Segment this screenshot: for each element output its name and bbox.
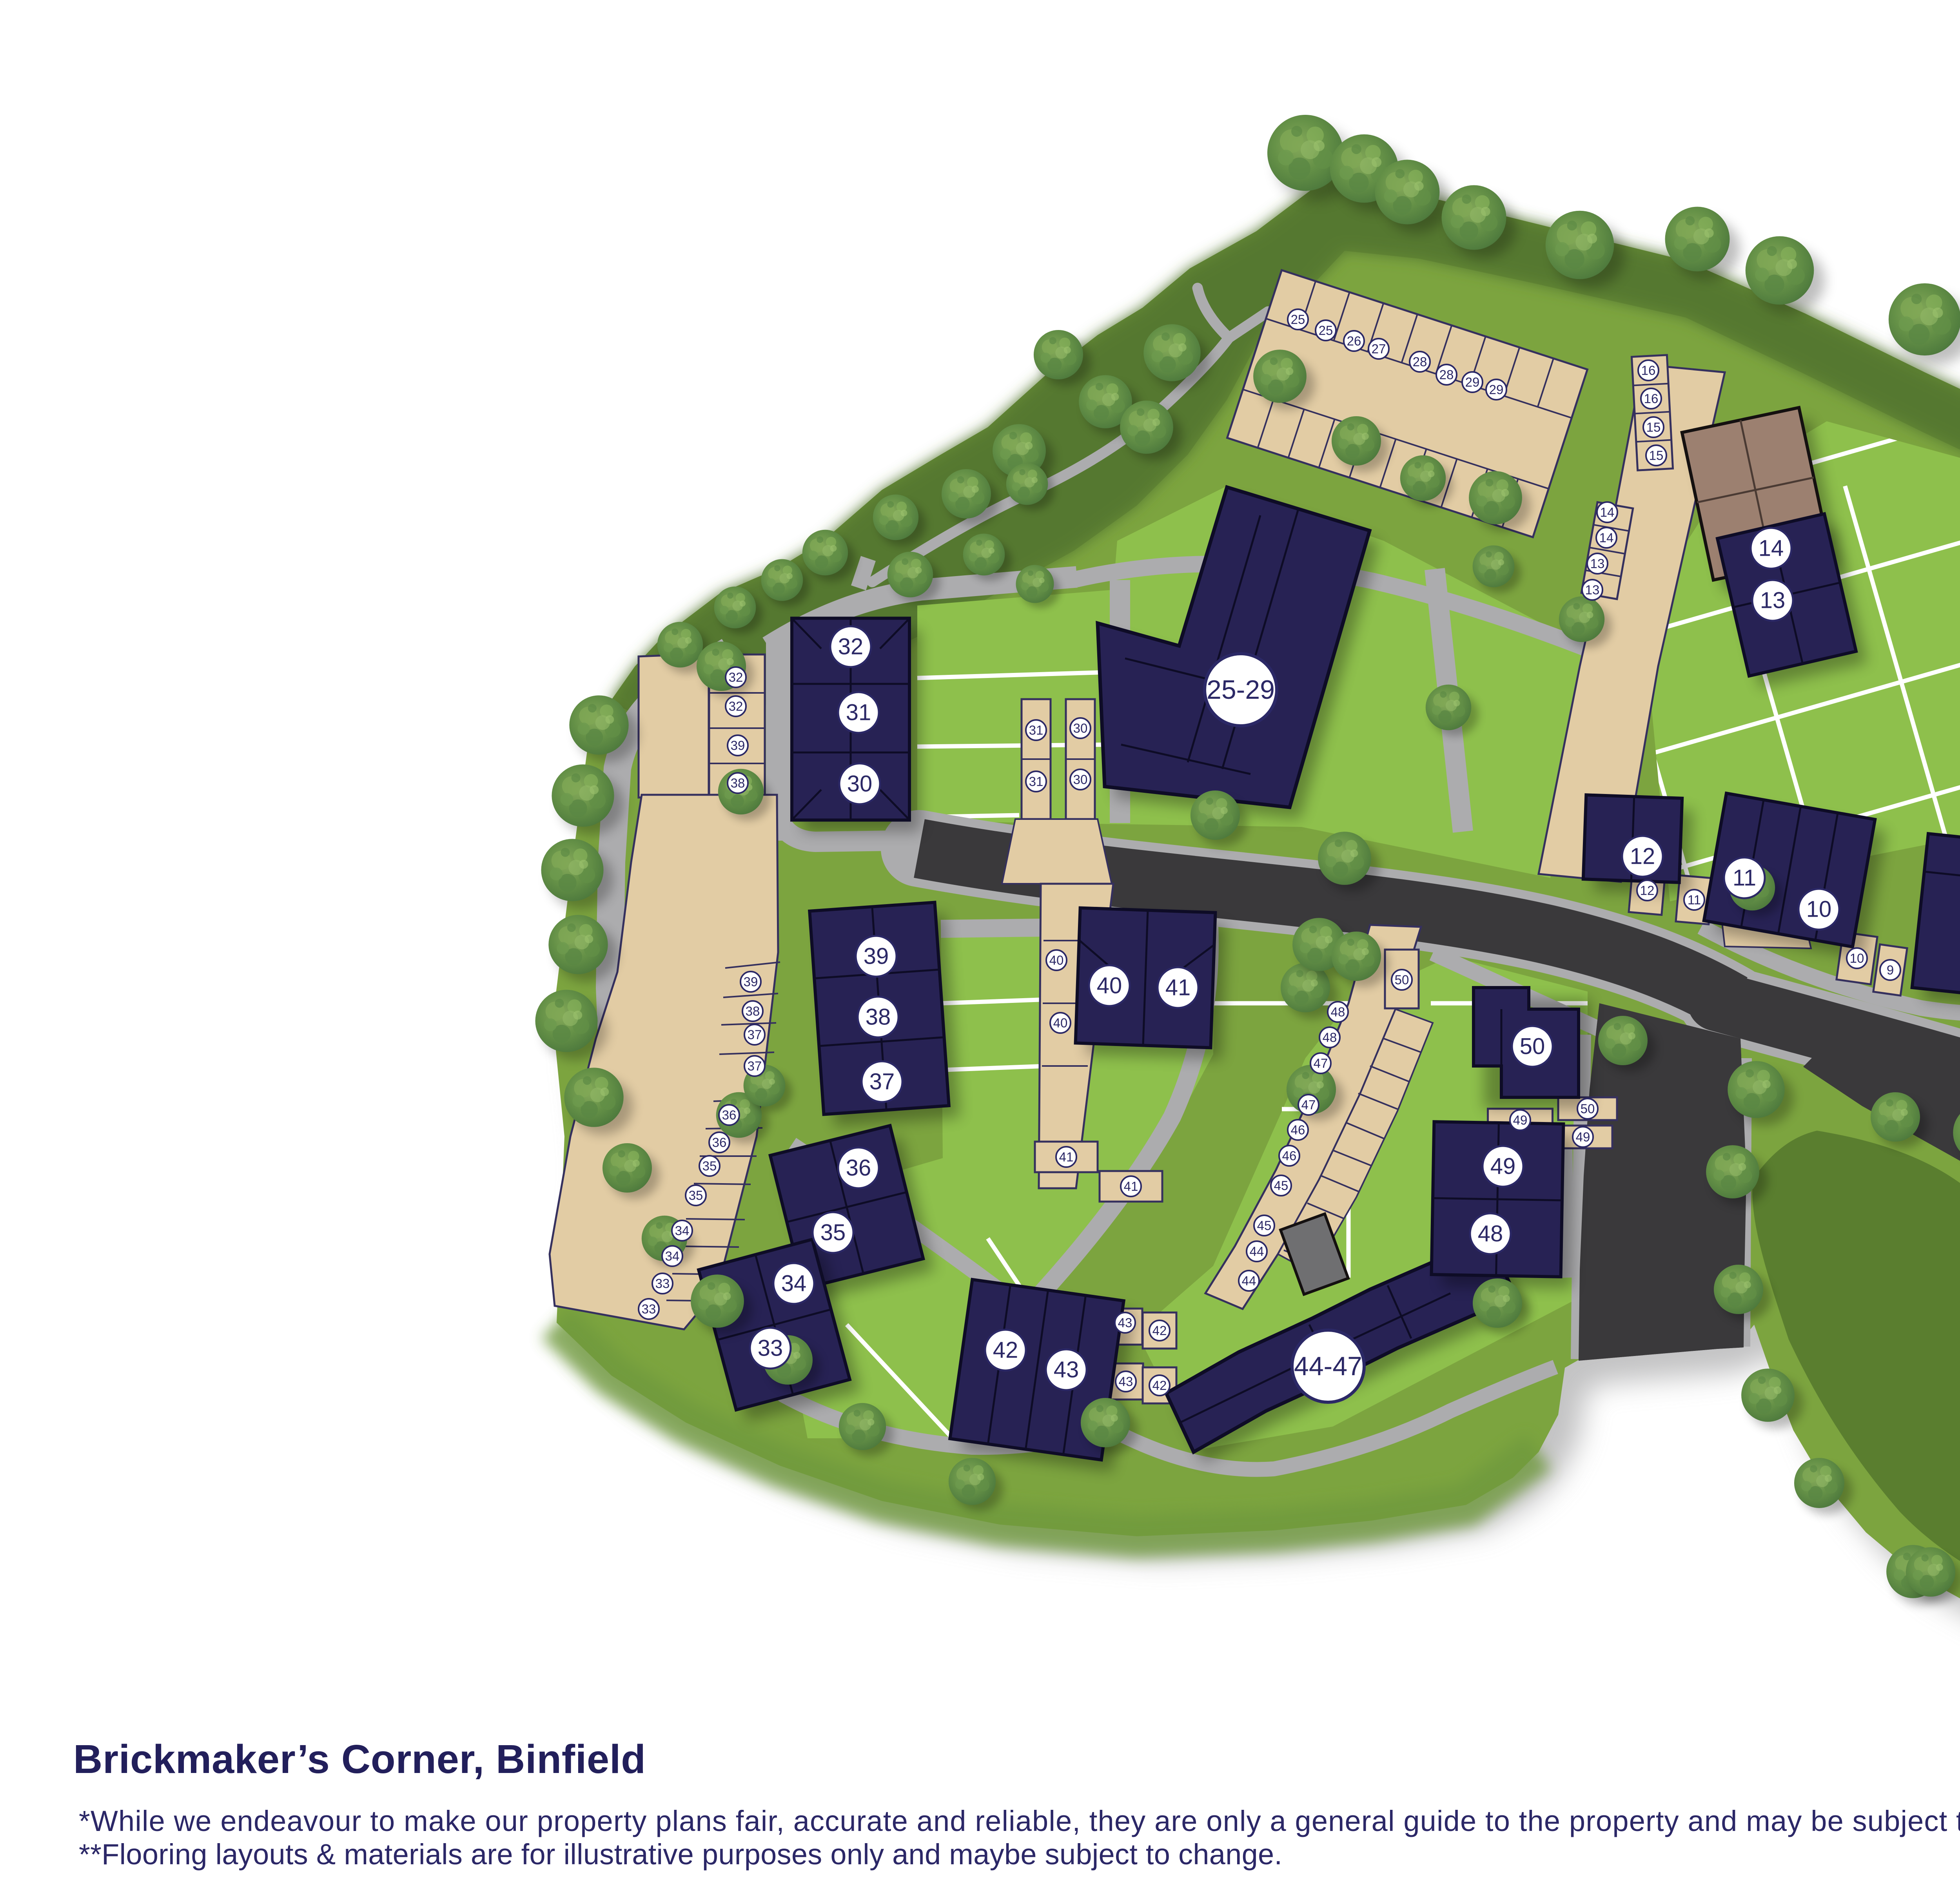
svg-text:30: 30 [847, 771, 873, 797]
svg-text:36: 36 [722, 1108, 737, 1122]
svg-text:33: 33 [642, 1302, 656, 1316]
svg-text:16: 16 [1641, 363, 1656, 378]
svg-text:35: 35 [702, 1159, 717, 1173]
svg-text:14: 14 [1759, 536, 1784, 561]
svg-text:10: 10 [1850, 951, 1864, 966]
svg-text:11: 11 [1688, 893, 1701, 907]
svg-text:44-47: 44-47 [1294, 1351, 1362, 1381]
svg-text:50: 50 [1395, 973, 1409, 987]
svg-text:35: 35 [689, 1188, 703, 1203]
svg-text:35: 35 [820, 1220, 846, 1245]
svg-text:30: 30 [1073, 772, 1088, 787]
svg-text:49: 49 [1513, 1113, 1528, 1128]
svg-text:37: 37 [869, 1069, 895, 1095]
svg-text:37: 37 [748, 1028, 762, 1042]
svg-text:32: 32 [838, 634, 864, 660]
svg-text:33: 33 [655, 1276, 670, 1291]
svg-text:36: 36 [846, 1155, 871, 1181]
svg-text:13: 13 [1585, 583, 1600, 597]
svg-text:28: 28 [1413, 355, 1427, 369]
svg-text:25: 25 [1319, 323, 1333, 338]
svg-text:33: 33 [758, 1336, 783, 1361]
svg-text:29: 29 [1489, 383, 1504, 397]
svg-text:42: 42 [1152, 1378, 1167, 1393]
svg-text:34: 34 [665, 1249, 680, 1264]
svg-text:36: 36 [712, 1135, 727, 1150]
svg-text:42: 42 [1152, 1323, 1167, 1338]
svg-text:29: 29 [1465, 375, 1480, 390]
svg-text:15: 15 [1646, 420, 1661, 435]
svg-text:49: 49 [1490, 1154, 1516, 1179]
svg-text:37: 37 [748, 1059, 762, 1073]
svg-text:16: 16 [1644, 392, 1659, 406]
svg-text:31: 31 [1029, 774, 1044, 789]
svg-text:**Flooring layouts & materials: **Flooring layouts & materials are for i… [79, 1838, 1282, 1871]
svg-text:46: 46 [1291, 1123, 1305, 1137]
svg-text:25: 25 [1291, 312, 1305, 327]
svg-text:14: 14 [1600, 505, 1615, 520]
svg-text:31: 31 [846, 700, 871, 725]
svg-text:41: 41 [1165, 975, 1191, 1001]
svg-text:Brickmaker’s Corner, Binfield: Brickmaker’s Corner, Binfield [73, 1737, 646, 1782]
svg-text:27: 27 [1372, 342, 1386, 356]
svg-text:32: 32 [729, 699, 743, 714]
svg-text:47: 47 [1301, 1098, 1316, 1112]
svg-text:26: 26 [1347, 334, 1361, 348]
svg-text:39: 39 [731, 738, 745, 753]
svg-text:44: 44 [1242, 1274, 1256, 1288]
svg-text:40: 40 [1049, 953, 1064, 968]
svg-text:40: 40 [1053, 1016, 1068, 1030]
svg-text:48: 48 [1323, 1030, 1337, 1045]
svg-text:*While we endeavour to make ou: *While we endeavour to make our property… [79, 1805, 1960, 1837]
svg-text:13: 13 [1590, 557, 1605, 571]
svg-text:34: 34 [781, 1271, 807, 1296]
svg-text:12: 12 [1630, 844, 1655, 869]
svg-text:48: 48 [1478, 1221, 1503, 1247]
svg-text:38: 38 [731, 776, 745, 790]
svg-text:49: 49 [1576, 1130, 1590, 1144]
svg-text:38: 38 [866, 1004, 891, 1030]
svg-text:12: 12 [1640, 883, 1655, 898]
svg-text:28: 28 [1439, 368, 1454, 382]
svg-text:25-29: 25-29 [1207, 675, 1275, 705]
svg-text:10: 10 [1806, 897, 1832, 922]
svg-text:34: 34 [675, 1224, 690, 1238]
svg-text:39: 39 [744, 975, 758, 989]
svg-text:41: 41 [1124, 1179, 1138, 1194]
svg-text:32: 32 [729, 670, 743, 685]
svg-text:9: 9 [1887, 963, 1894, 977]
svg-text:41: 41 [1059, 1150, 1074, 1164]
svg-text:14: 14 [1599, 531, 1614, 545]
svg-text:42: 42 [993, 1338, 1018, 1363]
svg-text:38: 38 [746, 1004, 760, 1019]
svg-text:47: 47 [1314, 1056, 1328, 1071]
svg-text:50: 50 [1581, 1102, 1595, 1116]
svg-text:45: 45 [1274, 1178, 1289, 1193]
svg-text:13: 13 [1760, 588, 1786, 613]
svg-text:48: 48 [1331, 1005, 1345, 1019]
svg-text:46: 46 [1282, 1149, 1297, 1163]
svg-text:43: 43 [1119, 1374, 1133, 1389]
svg-text:31: 31 [1029, 723, 1044, 738]
svg-text:39: 39 [864, 944, 889, 969]
svg-text:45: 45 [1257, 1218, 1272, 1233]
svg-text:44: 44 [1250, 1244, 1264, 1259]
svg-text:30: 30 [1073, 721, 1088, 736]
svg-text:40: 40 [1097, 973, 1122, 999]
svg-text:15: 15 [1649, 448, 1664, 463]
svg-text:50: 50 [1520, 1034, 1545, 1059]
svg-text:43: 43 [1054, 1357, 1079, 1383]
svg-text:43: 43 [1118, 1316, 1132, 1330]
svg-text:11: 11 [1733, 865, 1756, 891]
